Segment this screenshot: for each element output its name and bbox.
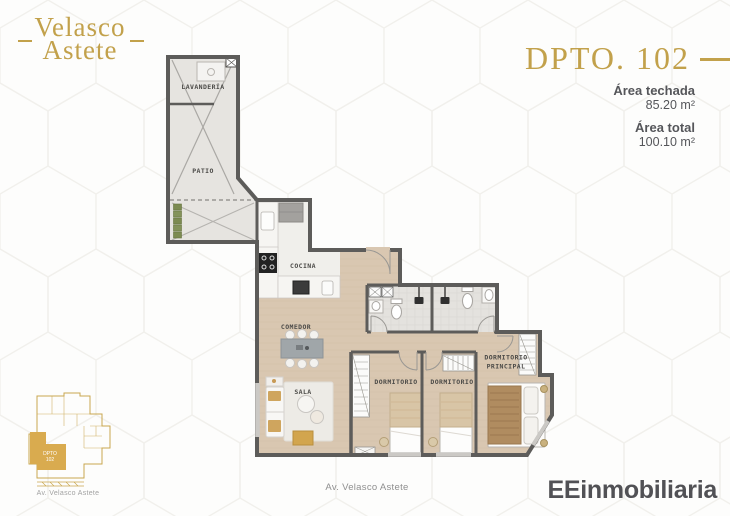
area-summary: Área techada 85.20 m² Área total 100.10 …: [455, 83, 695, 150]
street-caption: Av. Velasco Astete: [325, 482, 408, 493]
pillow: [524, 387, 538, 414]
washing-machine: [197, 62, 225, 81]
toilet: [463, 294, 473, 309]
unit-title: DPTO. 102: [420, 40, 690, 77]
key-plan: DPTO 102: [22, 392, 114, 494]
flyer-page: LAVANDERÍA PATIO COCINA COMEDOR SALA DOR…: [0, 0, 730, 516]
kitchen-sink: [261, 212, 274, 230]
stool: [429, 438, 438, 447]
room-label-master: DORMITORIOPRINCIPAL: [484, 354, 527, 371]
agency-logo: EEinmobiliaria: [548, 476, 717, 505]
shower-head: [415, 297, 424, 304]
room-label-dining: COMEDOR: [281, 323, 311, 331]
area-total: Área total 100.10 m²: [455, 120, 695, 150]
dining-area: [281, 330, 323, 369]
key-plan-caption: Av. Velasco Astete: [37, 490, 100, 497]
nightstand: [541, 386, 548, 393]
key-plan-unit-label-2: 102: [46, 457, 55, 463]
island-hob: [293, 281, 309, 294]
brand-dash-left: [18, 40, 32, 42]
side-table: [311, 411, 324, 424]
room-label-bedroom-1: DORMITORIO: [374, 378, 417, 386]
room-label-living: SALA: [294, 388, 311, 396]
room-label-bedroom-2: DORMITORIO: [430, 378, 473, 386]
toilet: [392, 305, 402, 319]
tv-stand: [293, 431, 313, 445]
room-label-patio: PATIO: [192, 167, 214, 175]
kitchen-sink-2: [322, 281, 333, 295]
brand-line2: Astete: [14, 39, 146, 62]
room-label-kitchen: COCINA: [290, 262, 316, 270]
brand-dash-right: [130, 40, 144, 42]
planter: [174, 204, 182, 238]
area-roofed: Área techada 85.20 m²: [455, 83, 695, 113]
brand-logo: Velasco Astete: [14, 16, 146, 62]
fridge: [279, 203, 303, 222]
room-label-laundry: LAVANDERÍA: [181, 83, 224, 91]
nightstand: [541, 440, 548, 447]
coffee-table: [298, 396, 315, 413]
stool: [380, 438, 389, 447]
shower-head: [441, 297, 450, 304]
stove: [259, 253, 277, 273]
title-rule: [700, 58, 730, 61]
